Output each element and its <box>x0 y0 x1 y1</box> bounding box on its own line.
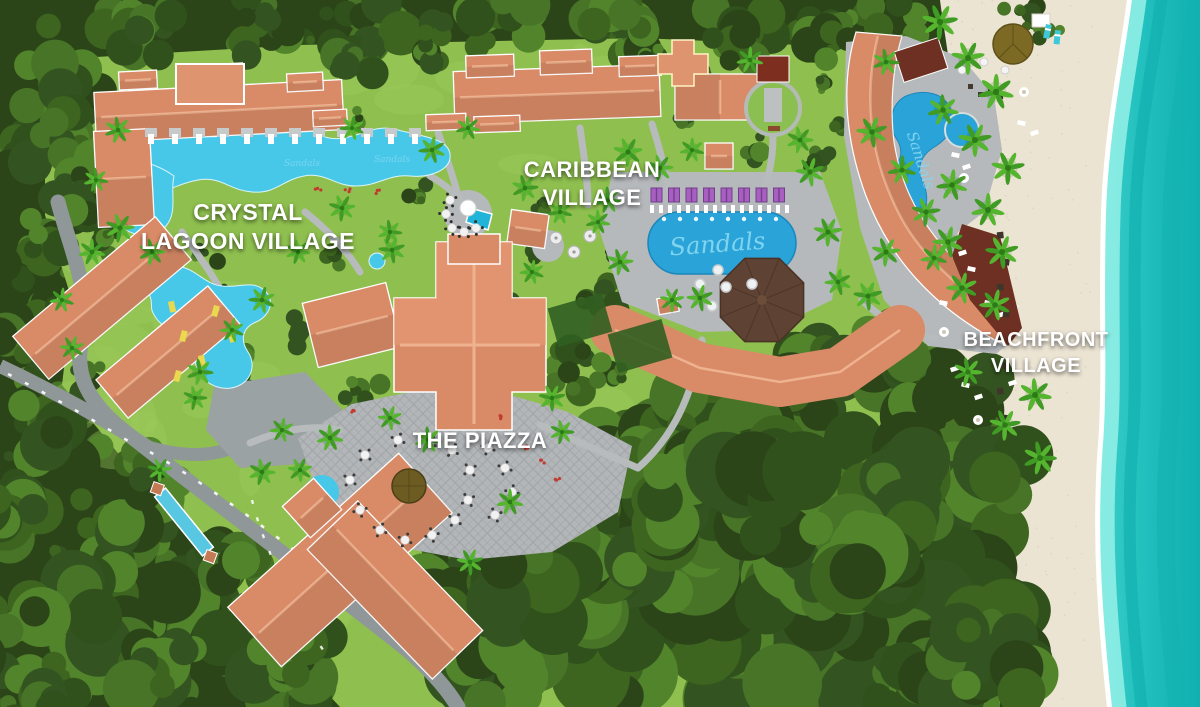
resort-map-image: Sandals Sandals Sandals Sandals CRYSTAL … <box>0 0 1200 707</box>
label-beachfront-line1: BEACHFRONT <box>964 329 1109 351</box>
label-caribbean-line2: VILLAGE <box>543 185 642 210</box>
octagon-restaurant-roof <box>720 258 803 341</box>
resort-map-screenshot: Sandals Sandals Sandals Sandals CRYSTAL … <box>0 0 1200 707</box>
label-piazza: THE PIAZZA <box>413 428 548 453</box>
gazebo-roof <box>757 56 789 82</box>
label-crystal-lagoon-line1: CRYSTAL <box>193 199 303 225</box>
lagoon-brand-script-1: Sandals <box>284 159 320 169</box>
lagoon-brand-script-2: Sandals <box>374 155 410 165</box>
rooftop-terrace <box>176 64 244 104</box>
garden-pool-small <box>369 253 385 269</box>
label-caribbean-line1: CARIBBEAN <box>524 157 661 182</box>
label-beachfront-line2: VILLAGE <box>991 355 1081 377</box>
label-crystal-lagoon-line2: LAGOON VILLAGE <box>141 228 355 254</box>
